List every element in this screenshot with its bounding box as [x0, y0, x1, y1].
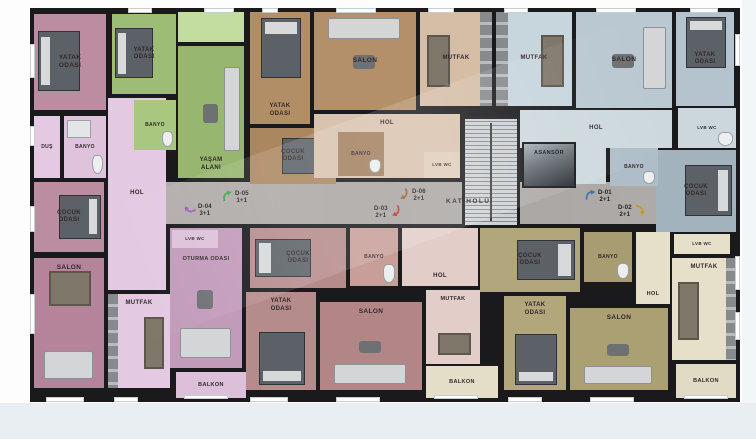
furniture-dtable-icon — [438, 333, 471, 355]
window-marker — [250, 397, 288, 402]
furniture-counter-icon — [496, 12, 508, 106]
room-merdiven — [462, 116, 520, 228]
room-label: YATAK ODASI — [271, 292, 292, 313]
furniture-dtable-icon — [144, 317, 164, 370]
room-d01-cocuk-odasi: ÇOCUK ODASI — [656, 150, 736, 232]
room-label: ÇOCUK ODASI — [518, 253, 542, 268]
window-marker — [46, 397, 84, 402]
room-label: YATAK ODASI — [270, 103, 291, 118]
unit-tag-D-01: D-012+1 — [584, 188, 612, 206]
room-d04-lvb-wc: LVB WC — [172, 230, 218, 248]
furniture-wc-icon — [369, 159, 381, 173]
room-label: LVB WC — [185, 236, 205, 242]
room-label: LVB WC — [692, 241, 712, 247]
unit-id: D-06 — [412, 189, 426, 195]
furniture-sofa-icon — [328, 18, 399, 40]
room-label: YATAK ODASI — [134, 47, 155, 62]
page-margin-bottom — [0, 403, 756, 439]
furniture-sofa-icon — [224, 67, 241, 151]
room-label: ASANSÖR — [534, 144, 564, 157]
room-d02-salon: SALON — [570, 308, 668, 390]
window-marker — [596, 8, 636, 13]
unit-tag-text: D-012+1 — [598, 190, 612, 204]
unit-id: D-05 — [235, 191, 249, 197]
room-d04-cocuk-odasi: ÇOCUK ODASI — [34, 182, 104, 252]
room-d04-yatak-odasi: YATAK ODASI — [34, 14, 106, 110]
room-d03-hol: HOL — [402, 228, 478, 286]
room-d05-banyo: BANYO — [134, 100, 176, 150]
window-marker — [30, 206, 35, 232]
furniture-counter-icon — [480, 12, 492, 106]
unit-tag-D-05: D-051+1 — [221, 189, 249, 207]
window-marker — [30, 44, 35, 78]
unit-tag-text: D-032+1 — [374, 206, 388, 220]
unit-direction-arrow-icon — [390, 204, 402, 222]
window-marker — [504, 8, 528, 13]
furniture-wc-icon — [162, 131, 173, 147]
room-label: BALKON — [693, 378, 719, 385]
window-marker — [336, 397, 380, 402]
room-label: SALON — [612, 56, 637, 64]
room-d01-salon: SALON — [576, 12, 672, 108]
window-marker — [508, 397, 542, 402]
room-label: LVB WC — [432, 162, 452, 168]
room-d04-banyo: BANYO — [64, 116, 106, 178]
furniture-wc-icon — [383, 264, 396, 282]
furniture-bath-icon — [67, 120, 92, 138]
room-d05-giris — [178, 12, 244, 42]
furniture-bed-icon — [261, 18, 301, 78]
room-label: HOL — [589, 125, 603, 133]
unit-id: D-03 — [374, 206, 388, 212]
unit-tag-text: D-062+1 — [412, 189, 426, 203]
room-d03-balkon: BALKON — [426, 366, 498, 398]
room-d06-mutfak: MUTFAK — [420, 12, 492, 106]
room-d02-banyo: BANYO — [584, 232, 632, 282]
room-d06-yatak-odasi: YATAK ODASI — [250, 12, 310, 124]
furniture-wc-icon — [617, 263, 630, 279]
unit-tag-D-06: D-062+1 — [398, 187, 426, 205]
room-d02-hol: HOL — [636, 232, 670, 304]
unit-direction-arrow-icon — [584, 188, 596, 206]
unit-type: 2+1 — [600, 197, 611, 203]
room-oturma-odasi: OTURMA ODASI — [170, 228, 242, 368]
room-label: ÇOCUK ODASI — [286, 251, 310, 266]
furniture-sofa-icon — [334, 364, 405, 384]
room-d01-hol-2 — [576, 148, 606, 184]
page-margin-right — [742, 0, 756, 403]
room-label: LVB WC — [697, 125, 717, 131]
room-label: ÇOCUK ODASI — [281, 149, 305, 164]
unit-direction-arrow-icon — [634, 203, 646, 221]
furniture-rtable-icon — [197, 290, 213, 310]
room-label: BANYO — [145, 122, 165, 128]
window-marker — [30, 294, 35, 334]
room-label: HOL — [130, 190, 144, 198]
room-label: BANYO — [364, 254, 384, 260]
furniture-dtable-icon — [678, 282, 699, 339]
unit-tag-text: D-043+1 — [198, 204, 212, 218]
room-label: BANYO — [75, 144, 95, 150]
room-label: ÇOCUK ODASI — [684, 184, 708, 199]
window-marker — [684, 395, 728, 399]
window-marker — [434, 395, 478, 399]
furniture-dtable-icon — [49, 271, 91, 306]
unit-tag-D-02: D-022+1 — [618, 203, 646, 221]
unit-direction-arrow-icon — [221, 189, 233, 207]
room-label: SALON — [353, 57, 378, 65]
room-d04-dus: DUŞ — [34, 116, 60, 178]
room-asansor: ASANSÖR — [522, 142, 576, 188]
room-label: HOL — [647, 291, 660, 298]
room-d05-yasam-alani: YAŞAM ALANI — [178, 46, 244, 178]
furniture-bed-icon — [515, 334, 557, 385]
room-d02-balkon: BALKON — [676, 364, 736, 398]
unit-id: D-02 — [618, 205, 632, 211]
room-label: YATAK ODASI — [59, 54, 82, 70]
window-marker — [735, 34, 740, 66]
room-label: DUŞ — [41, 144, 53, 150]
unit-id: D-04 — [198, 204, 212, 210]
window-marker — [690, 8, 718, 13]
room-label: YATAK ODASI — [525, 296, 546, 317]
furniture-sofa-icon — [180, 328, 231, 358]
unit-type: 3+1 — [200, 211, 211, 217]
room-d01-yatak-odasi: YATAK ODASI — [676, 12, 734, 106]
room-label: BANYO — [624, 164, 644, 170]
room-label: YAŞAM ALANI — [200, 157, 223, 172]
furniture-sofa-icon — [643, 27, 666, 89]
window-marker — [128, 8, 152, 13]
room-d03-yatak-odasi: YATAK ODASI — [246, 292, 316, 390]
room-label: MUTFAK — [520, 55, 547, 63]
window-marker — [735, 256, 740, 290]
window-marker — [30, 126, 35, 146]
unit-type: 2+1 — [376, 213, 387, 219]
room-label: BANYO — [598, 254, 618, 260]
room-label: MUTFAK — [440, 290, 465, 303]
room-label: SALON — [359, 302, 384, 316]
unit-type: 1+1 — [237, 198, 248, 204]
furniture-sofa-icon — [584, 366, 653, 384]
room-d06-lvb-wc: LVB WC — [424, 152, 460, 178]
room-d02-cocuk-odasi: ÇOCUK ODASI — [480, 228, 580, 292]
window-marker — [114, 397, 138, 402]
furniture-rtable-icon — [359, 341, 381, 353]
room-label: ÇOCUK ODASI — [57, 210, 81, 225]
unit-tag-D-04: D-043+1 — [184, 202, 212, 220]
unit-direction-arrow-icon — [398, 187, 410, 205]
furniture-wc-icon — [718, 132, 733, 145]
room-d05-yatak-odasi: YATAK ODASI — [112, 14, 176, 94]
room-d03-salon: SALON — [320, 302, 422, 390]
room-label: BALKON — [449, 379, 475, 386]
room-d03-banyo: BANYO — [350, 228, 398, 286]
room-label: MUTFAK — [690, 258, 717, 272]
unit-direction-arrow-icon — [184, 202, 196, 220]
room-label: HOL — [433, 273, 447, 281]
unit-tag-text: D-022+1 — [618, 205, 632, 219]
room-d02-mutfak: MUTFAK — [672, 258, 736, 360]
unit-tag-text: D-051+1 — [235, 191, 249, 205]
room-d06-salon: SALON — [314, 12, 416, 110]
unit-type: 2+1 — [414, 196, 425, 202]
room-d03-cocuk-odasi: ÇOCUK ODASI — [250, 228, 346, 288]
window-marker — [428, 8, 454, 13]
window-marker — [184, 395, 228, 399]
unit-id: D-01 — [598, 190, 612, 196]
room-label: MUTFAK — [442, 55, 469, 63]
room-d02-lvb-wc: LVB WC — [674, 234, 730, 254]
window-marker — [204, 8, 234, 13]
window-marker — [336, 8, 376, 13]
room-d01-banyo: BANYO — [610, 148, 658, 186]
room-d04-salon: SALON — [34, 258, 104, 388]
window-marker — [590, 397, 634, 402]
furniture-counter-icon — [108, 294, 118, 388]
room-label: MUTFAK — [125, 294, 152, 308]
room-d01-lvb-wc: LVB WC — [678, 108, 736, 148]
furniture-wc-icon — [92, 155, 103, 174]
room-d06-banyo: BANYO — [338, 132, 384, 176]
window-marker — [262, 8, 278, 13]
furniture-bed-icon — [259, 332, 306, 385]
furniture-rtable-icon — [203, 104, 218, 122]
furniture-rtable-icon — [607, 344, 629, 355]
room-label: BANYO — [351, 151, 371, 157]
room-label: SALON — [57, 258, 82, 272]
furniture-wc-icon — [643, 171, 656, 184]
room-label: HOL — [380, 114, 394, 128]
furniture-sofa-icon — [44, 351, 94, 379]
room-d04-mutfak: MUTFAK — [108, 294, 170, 388]
unit-type: 2+1 — [620, 212, 631, 218]
room-label: YATAK ODASI — [695, 52, 716, 67]
room-label: SALON — [607, 308, 632, 322]
room-d02-yatak-odasi: YATAK ODASI — [504, 296, 566, 390]
window-marker — [735, 312, 740, 340]
floor-plan-image: HOLYATAK ODASIDUŞBANYOÇOCUK ODASISALONMU… — [0, 0, 756, 439]
unit-tag-D-03: D-032+1 — [374, 204, 402, 222]
room-d03-mutfak: MUTFAK — [426, 290, 480, 364]
room-label: BALKON — [198, 382, 224, 389]
room-d01-mutfak: MUTFAK — [496, 12, 572, 106]
corridor-label: KAT HOLÜ — [446, 198, 490, 205]
